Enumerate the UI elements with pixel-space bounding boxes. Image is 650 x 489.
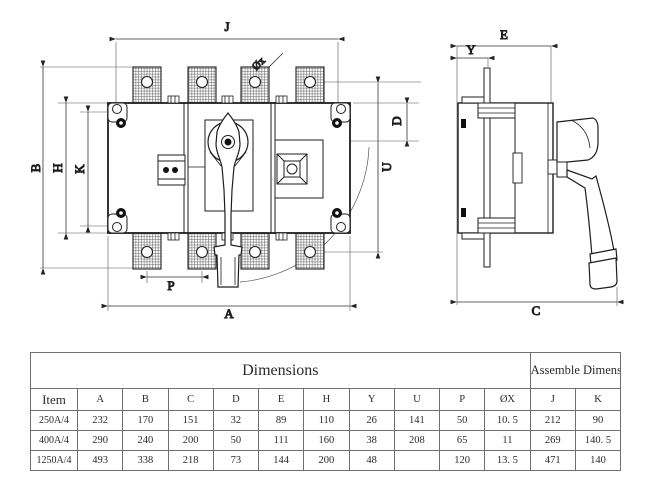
value-cell: 38 <box>349 431 394 451</box>
value-cell: 200 <box>304 451 349 471</box>
value-cell: 26 <box>349 411 394 431</box>
item-cell: 1250A/4 <box>31 451 78 471</box>
column-header-d: D <box>213 389 258 411</box>
column-header-e: E <box>259 389 304 411</box>
value-cell: 240 <box>123 431 168 451</box>
switch-drawing: J B H K A P U D Øx <box>0 0 650 348</box>
value-cell: 338 <box>123 451 168 471</box>
value-cell: 170 <box>123 411 168 431</box>
value-cell: 151 <box>168 411 213 431</box>
dim-label-u: U <box>379 162 394 172</box>
column-header-j: J <box>530 389 575 411</box>
value-cell: 13. 5 <box>485 451 530 471</box>
value-cell: 10. 5 <box>485 411 530 431</box>
technical-drawing-page: J B H K A P U D Øx <box>0 0 650 489</box>
dim-label-e: E <box>500 27 508 42</box>
dim-label-d: D <box>389 116 404 125</box>
value-cell: 111 <box>259 431 304 451</box>
value-cell: 212 <box>530 411 575 431</box>
column-header-u: U <box>394 389 439 411</box>
value-cell: 208 <box>394 431 439 451</box>
side-view: E Y C <box>457 27 617 318</box>
column-header-c: C <box>168 389 213 411</box>
value-cell: 218 <box>168 451 213 471</box>
value-cell: 141 <box>394 411 439 431</box>
shaft-plate <box>275 140 323 198</box>
dim-label-a: A <box>224 306 234 321</box>
value-cell: 140. 5 <box>575 431 620 451</box>
column-header-h: H <box>304 389 349 411</box>
dim-label-j: J <box>224 19 229 34</box>
value-cell: 493 <box>78 451 123 471</box>
column-header-k: K <box>575 389 620 411</box>
side-body <box>458 68 557 267</box>
handle-side <box>557 118 617 289</box>
value-cell: 200 <box>168 431 213 451</box>
dim-label-p: P <box>167 278 174 293</box>
column-header-phix: ØX <box>485 389 530 411</box>
table-row-1250a: 1250A/4 493 338 218 73 144 200 48 120 13… <box>31 451 621 471</box>
column-header-item: Item <box>31 389 78 411</box>
assemble-dimension-banner: Assemble Dimension <box>530 353 621 389</box>
dim-label-c: C <box>532 303 541 318</box>
value-cell: 232 <box>78 411 123 431</box>
value-cell: 48 <box>349 451 394 471</box>
table-row-400a: 400A/4 290 240 200 50 111 160 38 208 65 … <box>31 431 621 451</box>
value-cell: 140 <box>575 451 620 471</box>
value-cell: 160 <box>304 431 349 451</box>
front-view: J B H K A P U D Øx <box>28 19 421 321</box>
dimensions-table: Dimensions Assemble Dimension Item A B C… <box>30 352 621 471</box>
value-cell: 120 <box>440 451 485 471</box>
dim-label-y: Y <box>466 42 476 57</box>
dimensions-banner: Dimensions <box>31 353 531 389</box>
value-cell: 73 <box>213 451 258 471</box>
value-cell: 65 <box>440 431 485 451</box>
value-cell: 11 <box>485 431 530 451</box>
dim-label-h: H <box>50 163 65 172</box>
value-cell: 269 <box>530 431 575 451</box>
value-cell: 110 <box>304 411 349 431</box>
column-header-b: B <box>123 389 168 411</box>
table-header-row: Item A B C D E H Y U P ØX J K <box>31 389 621 411</box>
value-cell: 50 <box>440 411 485 431</box>
dim-label-k: K <box>72 164 87 174</box>
value-cell: 89 <box>259 411 304 431</box>
column-header-y: Y <box>349 389 394 411</box>
value-cell: 290 <box>78 431 123 451</box>
value-cell <box>394 451 439 471</box>
column-header-a: A <box>78 389 123 411</box>
value-cell: 144 <box>259 451 304 471</box>
column-header-p: P <box>440 389 485 411</box>
value-cell: 471 <box>530 451 575 471</box>
value-cell: 90 <box>575 411 620 431</box>
item-cell: 400A/4 <box>31 431 78 451</box>
value-cell: 50 <box>213 431 258 451</box>
item-cell: 250A/4 <box>31 411 78 431</box>
dim-label-b: B <box>28 163 43 172</box>
value-cell: 32 <box>213 411 258 431</box>
table-banner-row: Dimensions Assemble Dimension <box>31 353 621 389</box>
table-row-250a: 250A/4 232 170 151 32 89 110 26 141 50 1… <box>31 411 621 431</box>
